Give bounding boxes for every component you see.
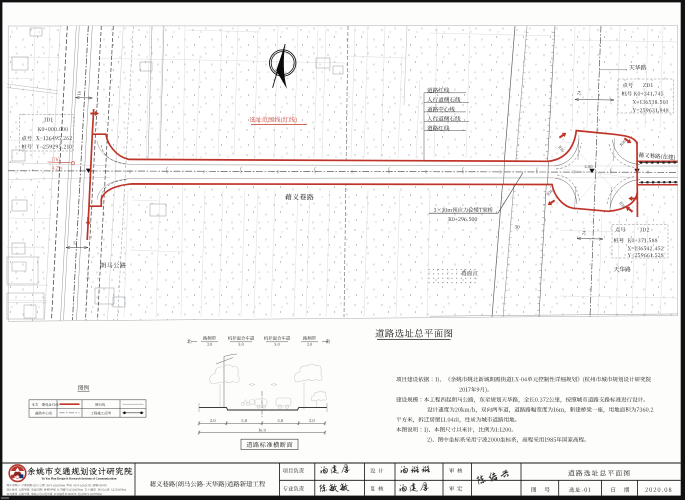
svg-text:Yu Yao Plan Design & Research: Yu Yao Plan Design & Research Institute … xyxy=(41,477,117,481)
